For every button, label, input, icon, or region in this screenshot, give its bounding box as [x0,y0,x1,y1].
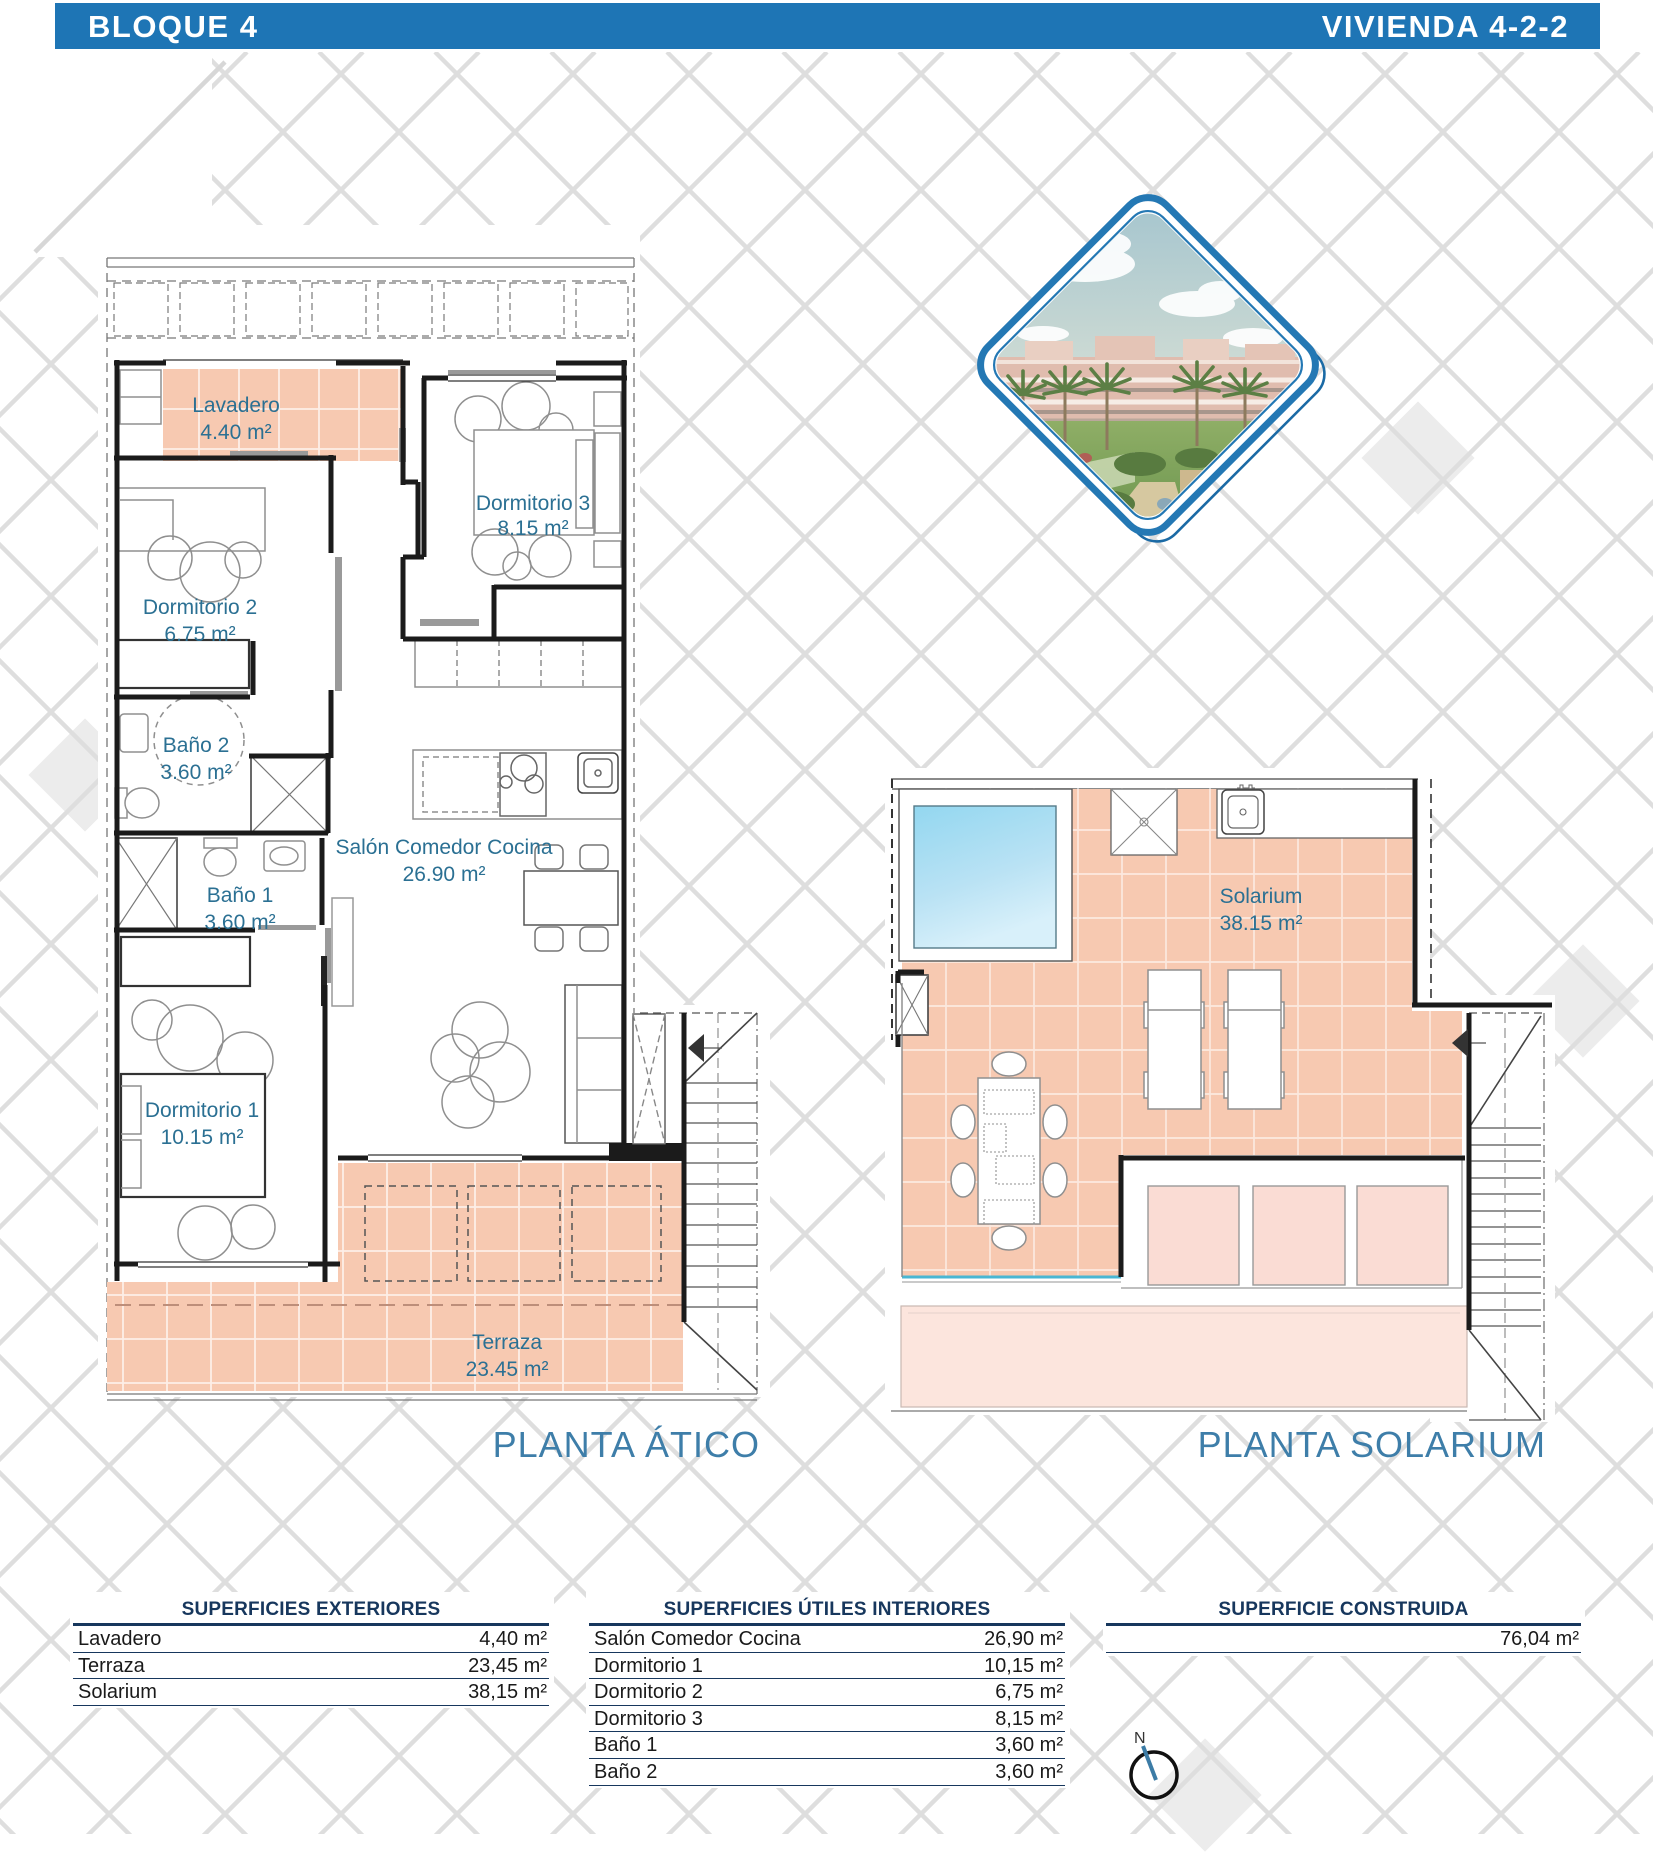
svg-text:10.15 m²: 10.15 m² [161,1126,244,1149]
svg-text:38.15 m²: 38.15 m² [1220,912,1303,935]
svg-text:6.75 m²: 6.75 m² [164,623,235,646]
svg-text:Terraza: Terraza [472,1331,542,1354]
svg-text:Dormitorio 2: Dormitorio 2 [143,596,257,619]
svg-text:26.90 m²: 26.90 m² [403,863,486,886]
svg-text:8.15 m²: 8.15 m² [497,517,568,540]
svg-text:3.60 m²: 3.60 m² [204,911,275,934]
svg-text:N: N [1134,1730,1146,1747]
svg-text:4.40 m²: 4.40 m² [200,421,271,444]
svg-text:Dormitorio 3: Dormitorio 3 [476,492,590,515]
svg-text:Lavadero: Lavadero [192,394,280,417]
svg-text:3.60 m²: 3.60 m² [160,761,231,784]
svg-text:Baño 1: Baño 1 [207,884,274,907]
svg-text:Dormitorio 1: Dormitorio 1 [145,1099,259,1122]
svg-text:Salón Comedor Cocina: Salón Comedor Cocina [335,836,552,859]
svg-text:23.45 m²: 23.45 m² [466,1358,549,1381]
svg-text:Baño 2: Baño 2 [163,734,230,757]
svg-text:Solarium: Solarium [1220,885,1303,908]
